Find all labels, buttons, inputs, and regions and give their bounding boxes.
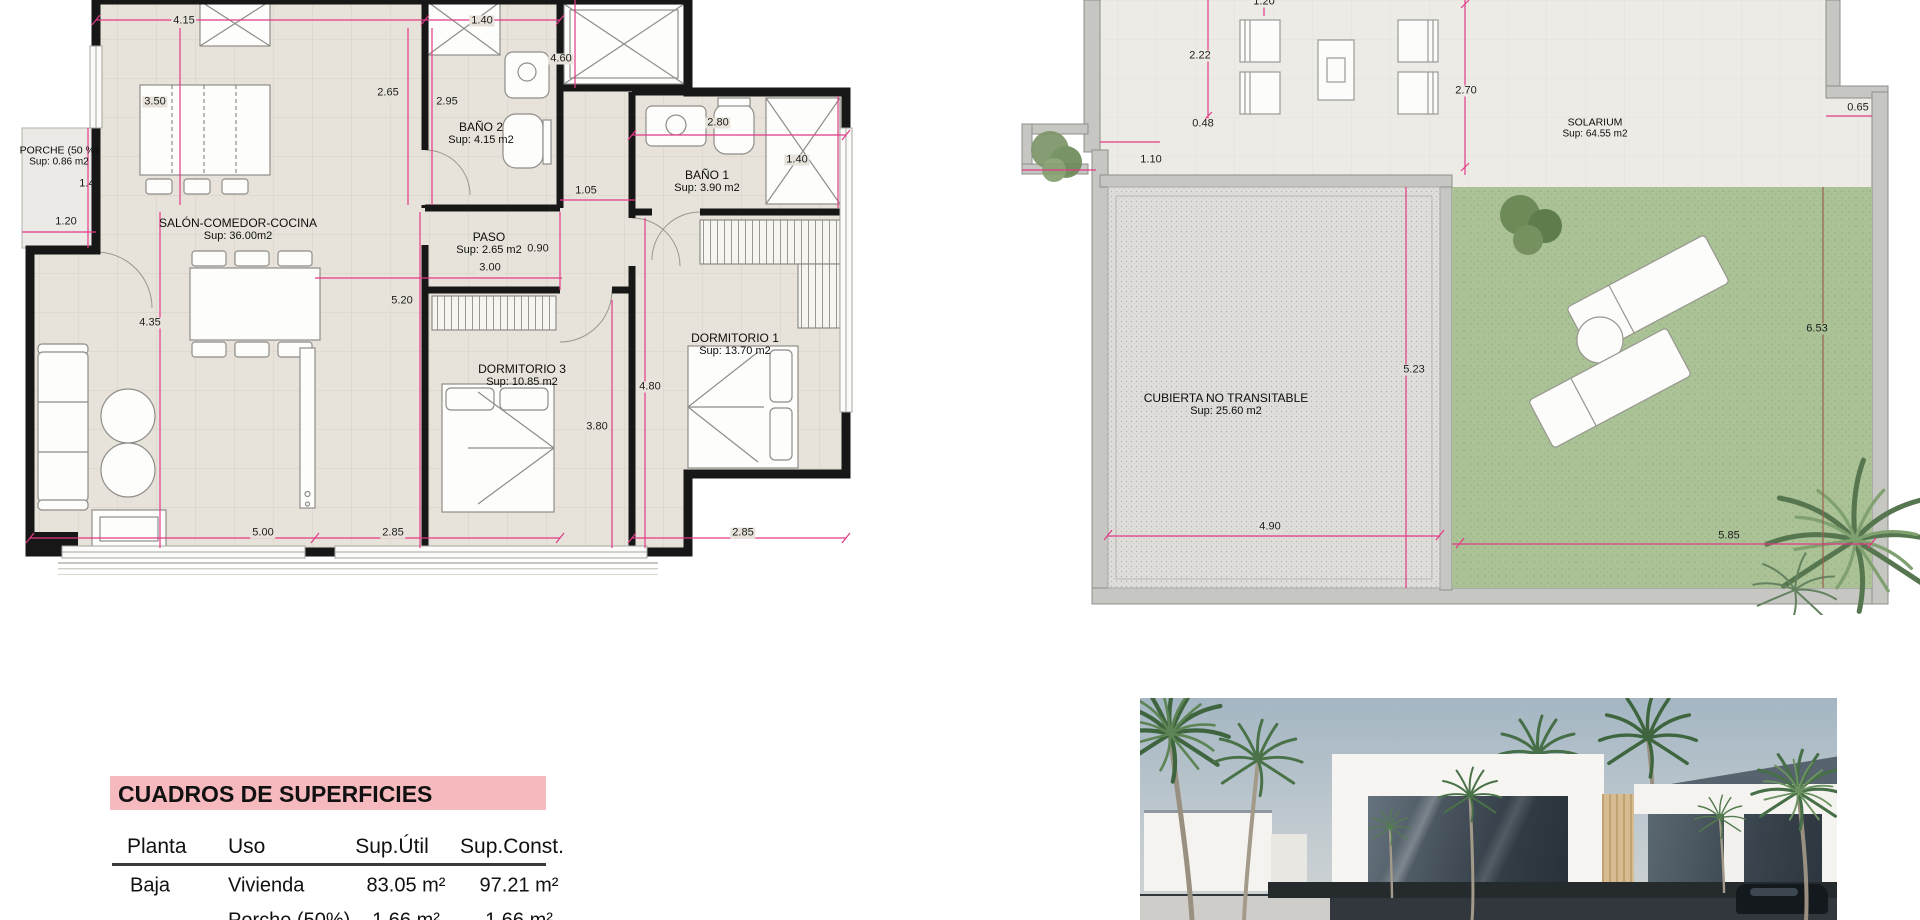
wardrobe-icon xyxy=(700,220,840,264)
table-cell: Vivienda xyxy=(228,875,304,898)
dim-label: 4.15 xyxy=(171,16,196,27)
table-cell: 1.66 m² xyxy=(485,910,553,920)
dim-label: 2.65 xyxy=(375,88,400,99)
dim-label: 1.40 xyxy=(784,155,809,166)
dim-label: 5.85 xyxy=(1716,531,1741,542)
room-label-dorm1: DORMITORIO 1Sup: 13.70 m2 xyxy=(691,331,779,357)
dim-label: 5.23 xyxy=(1401,365,1426,376)
floorplan-sheet: PORCHE (50 %)Sup: 0.86 m2 SALÓN-COMEDOR-… xyxy=(0,0,1920,920)
room-label-paso: PASOSup: 2.65 m2 xyxy=(456,230,521,256)
room-label-bano2: BAÑO 2Sup: 4.15 m2 xyxy=(448,120,513,146)
table-cell: 97.21 m² xyxy=(480,875,559,898)
room-label-bano1: BAÑO 1Sup: 3.90 m2 xyxy=(674,168,739,194)
bed-icon xyxy=(688,346,798,468)
dim-label: 2.22 xyxy=(1187,51,1212,62)
table-cell: Porche (50%) xyxy=(228,910,350,920)
sink-icon xyxy=(505,52,549,98)
dim-label: 4.60 xyxy=(548,54,573,65)
surfaces-table-title: CUADROS DE SUPERFICIES xyxy=(118,781,432,808)
dim-label: 1.40 xyxy=(469,16,494,27)
wardrobe-icon xyxy=(432,296,556,330)
dim-label: 6.53 xyxy=(1804,324,1829,335)
dim-label: 2.70 xyxy=(1453,86,1478,97)
dim-label: 3.50 xyxy=(142,97,167,108)
pouf-icon xyxy=(101,389,155,443)
closet-icon xyxy=(564,4,684,84)
table-col-supconst: Sup.Const. xyxy=(460,835,564,859)
bed-icon xyxy=(442,384,554,512)
shower-icon xyxy=(766,98,840,204)
house-render xyxy=(1140,698,1837,920)
palms-front xyxy=(1140,698,1837,920)
dim-label: 0.65 xyxy=(1845,103,1870,114)
room-label-solarium: SOLARIUMSup: 64.55 m2 xyxy=(1562,117,1627,140)
table-col-uso: Uso xyxy=(228,835,265,859)
room-label-dorm3: DORMITORIO 3Sup: 10.85 m2 xyxy=(478,362,566,388)
dim-label: 0.90 xyxy=(525,244,550,255)
table-col-suputil: Sup.Útil xyxy=(355,835,429,859)
room-label-salon: SALÓN-COMEDOR-COCINASup: 36.00m2 xyxy=(159,216,317,242)
pouf-icon xyxy=(101,443,155,497)
sink-icon xyxy=(646,106,706,146)
shower-icon xyxy=(428,2,500,55)
dim-label: 1.05 xyxy=(573,186,598,197)
dim-label: 2.80 xyxy=(705,118,730,129)
tv-unit-icon xyxy=(300,348,315,508)
dim-label: 2.85 xyxy=(380,528,405,539)
dim-label: 4.35 xyxy=(137,318,162,329)
floor-plan-left xyxy=(0,0,880,615)
wardrobe-icon xyxy=(798,264,840,328)
dim-label: 0.48 xyxy=(1190,119,1215,130)
dim-label: 3.00 xyxy=(477,263,502,274)
dim-label: 4.90 xyxy=(1257,522,1282,533)
dim-label: 3.80 xyxy=(584,422,609,433)
sofa-icon xyxy=(38,344,88,510)
table-col-planta: Planta xyxy=(127,835,187,859)
dim-label: 2.85 xyxy=(730,528,755,539)
dim-label: 5.00 xyxy=(250,528,275,539)
dim-label: 5.20 xyxy=(389,296,414,307)
dim-label: 1.20 xyxy=(1251,0,1276,8)
table-cell: Baja xyxy=(130,875,170,898)
table-cell: 1.66 m² xyxy=(372,910,440,920)
table-header-rule xyxy=(112,863,546,866)
dim-label: 1.20 xyxy=(53,217,78,228)
dim-label: 2.95 xyxy=(434,97,459,108)
cooktop-icon xyxy=(200,1,270,46)
dim-label: 1.45 xyxy=(77,179,102,190)
dim-label: 1.10 xyxy=(1138,155,1163,166)
room-label-porche: PORCHE (50 %)Sup: 0.86 m2 xyxy=(20,145,99,168)
coffee-table-icon xyxy=(92,510,166,548)
room-label-cubierta: CUBIERTA NO TRANSITABLESup: 25.60 m2 xyxy=(1144,391,1308,417)
dim-label: 4.80 xyxy=(637,382,662,393)
table-cell: 83.05 m² xyxy=(367,875,446,898)
